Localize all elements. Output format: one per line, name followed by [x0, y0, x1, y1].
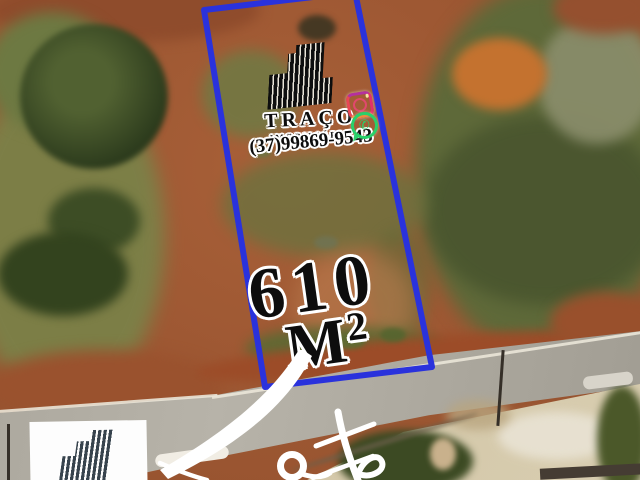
utility-pole	[7, 424, 10, 480]
lot-dark-spot	[298, 15, 336, 41]
aerial-photo: TRAÇO IMOBILIÁRIA (37)99869-9543 ✆ 610 M…	[0, 0, 640, 480]
instagram-flash-dot	[365, 94, 369, 98]
footer-logo-badge	[29, 420, 147, 480]
instagram-lens	[352, 97, 368, 113]
lote-script-text	[120, 350, 460, 480]
building-bars-icon	[267, 41, 334, 110]
bush-blob	[0, 232, 128, 316]
building-bars-icon	[58, 430, 114, 480]
lote-l-swash	[160, 350, 312, 479]
whatsapp-phone-glyph: ✆	[353, 114, 377, 138]
dirt-patch-right	[452, 38, 547, 110]
tree-blob	[20, 24, 168, 169]
